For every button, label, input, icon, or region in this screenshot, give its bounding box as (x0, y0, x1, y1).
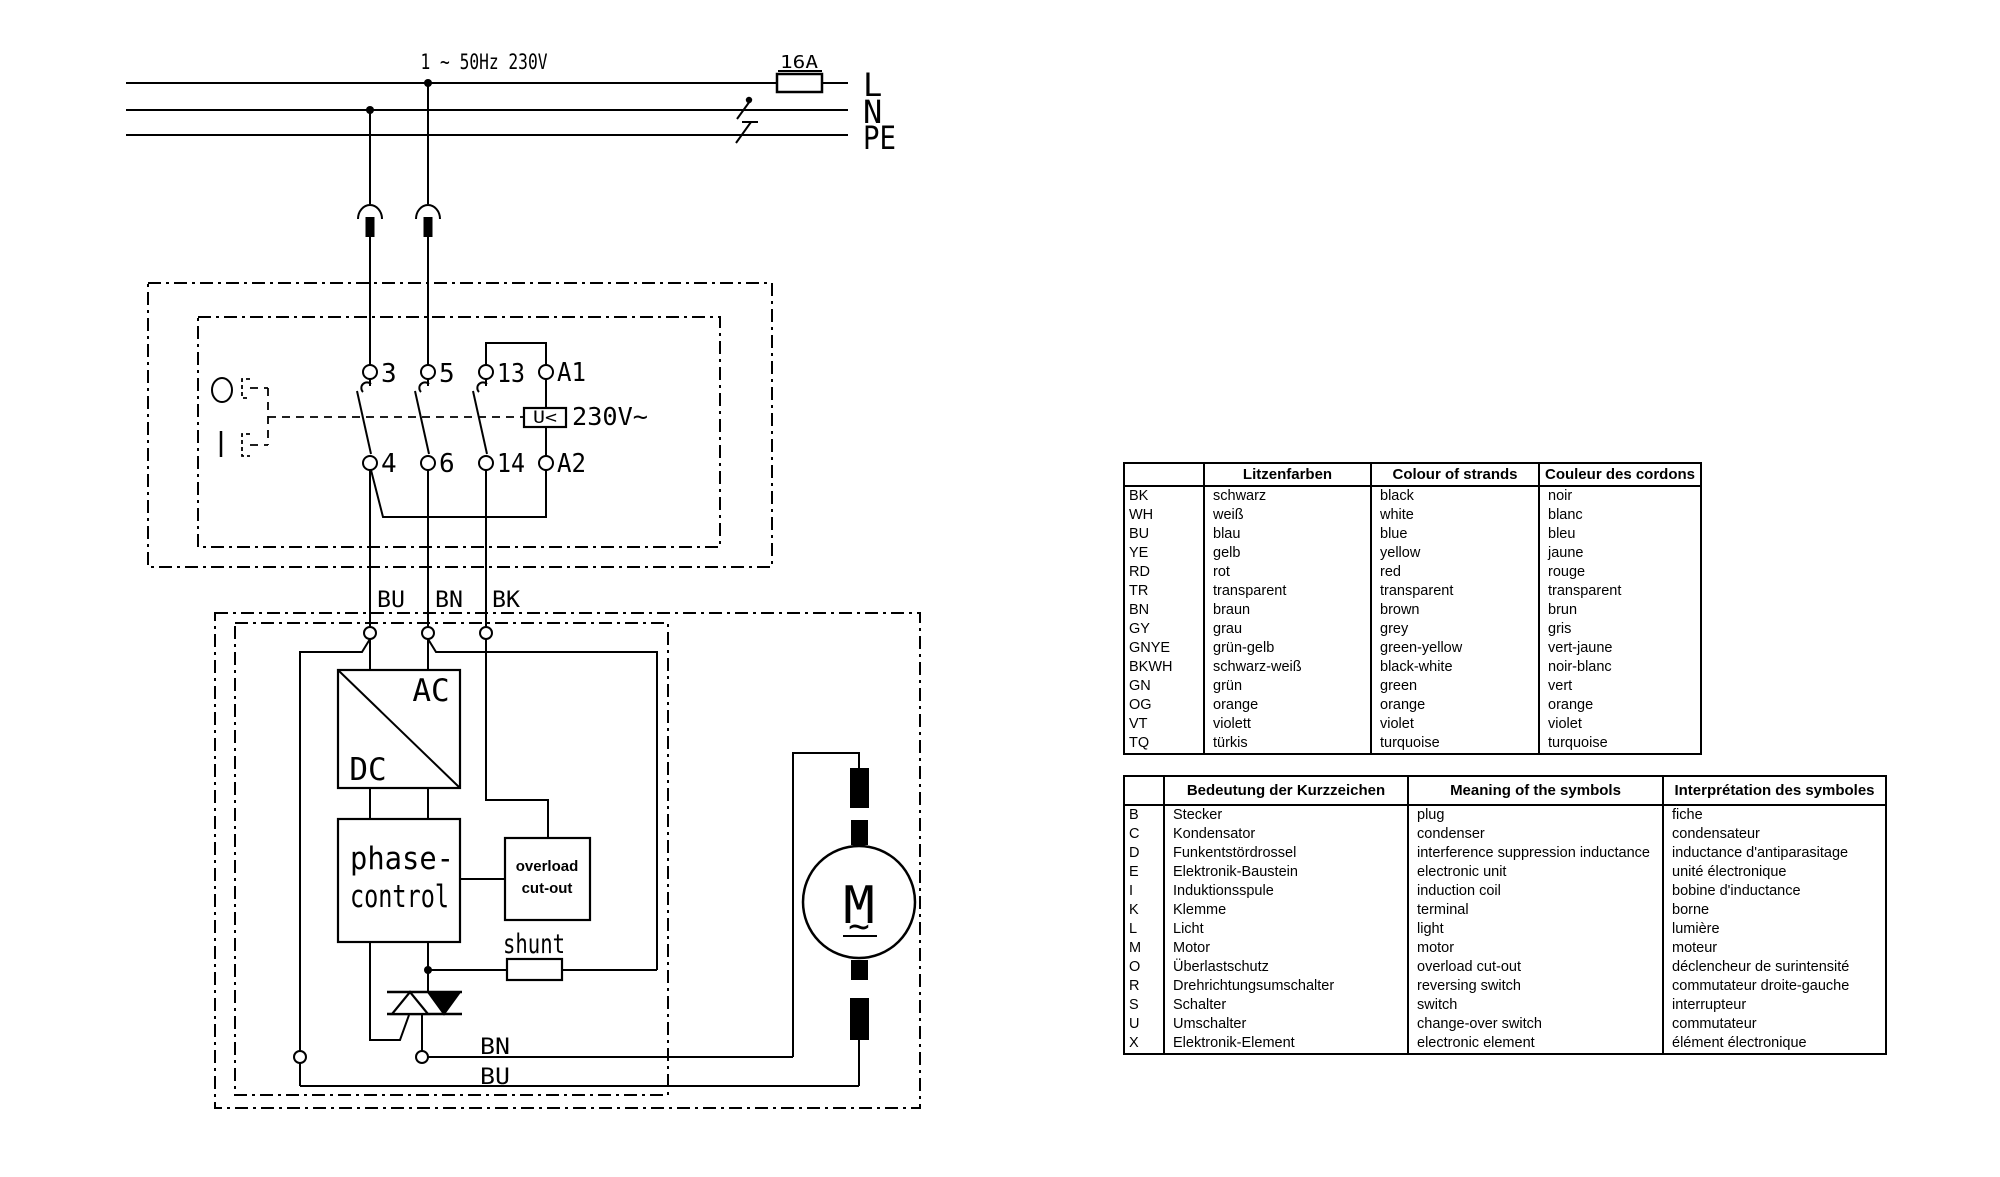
table-cell: brown (1371, 601, 1539, 620)
table-cell: C (1124, 825, 1164, 844)
table-cell: B (1124, 805, 1164, 825)
acdc-bottom-label: DC (349, 752, 386, 788)
table-cell: commutateur (1663, 1015, 1886, 1034)
table-row: LLichtlightlumière (1124, 920, 1886, 939)
table-cell: brun (1539, 601, 1701, 620)
table-row: RDrotredrouge (1124, 563, 1701, 582)
table-cell: terminal (1408, 901, 1663, 920)
table-cell: green-yellow (1371, 639, 1539, 658)
contact-13-14: 13 14 (473, 359, 525, 479)
page: { "diagram": { "supply_label": "1 ~ 50Hz… (0, 0, 2000, 1177)
table-cell: élément électronique (1663, 1034, 1886, 1054)
output-terminal (294, 1051, 306, 1063)
wires-to-unit: BU BN BK (370, 470, 521, 627)
table-cell: electronic element (1408, 1034, 1663, 1054)
contact-5-6: 5 6 (415, 359, 455, 479)
table-row: BUblaubluebleu (1124, 525, 1701, 544)
table-cell: grey (1371, 620, 1539, 639)
table-cell: X (1124, 1034, 1164, 1054)
column-header: Interprétation des symboles (1663, 776, 1886, 805)
terminal-label: A2 (557, 449, 586, 479)
table-cell: violett (1204, 715, 1371, 734)
table-cell: interrupteur (1663, 996, 1886, 1015)
table-row: MMotormotormoteur (1124, 939, 1886, 958)
table-cell: motor (1408, 939, 1663, 958)
table-cell: D (1124, 844, 1164, 863)
fuse-icon: 16A (777, 52, 822, 92)
table-cell: OG (1124, 696, 1204, 715)
motor-wave: ~ (848, 906, 870, 947)
table-cell: condenser (1408, 825, 1663, 844)
table-cell: Kondensator (1164, 825, 1408, 844)
table-cell: turquoise (1371, 734, 1539, 754)
shunt-label: shunt (503, 929, 565, 960)
table-cell: RD (1124, 563, 1204, 582)
table-cell: U (1124, 1015, 1164, 1034)
table-cell: gelb (1204, 544, 1371, 563)
motor-icon: M ~ (793, 753, 915, 1086)
table-cell: BK (1124, 486, 1204, 506)
unit-terminal (364, 627, 376, 639)
table-cell: reversing switch (1408, 977, 1663, 996)
table-cell: BN (1124, 601, 1204, 620)
table-cell: change-over switch (1408, 1015, 1663, 1034)
table-cell: Elektronik-Element (1164, 1034, 1408, 1054)
output-terminal (416, 1051, 428, 1063)
table-cell: weiß (1204, 506, 1371, 525)
table-cell: moteur (1663, 939, 1886, 958)
strand-colour-table: LitzenfarbenColour of strandsCouleur des… (1123, 462, 1702, 755)
table-cell: red (1371, 563, 1539, 582)
table-cell: M (1124, 939, 1164, 958)
table-cell: inductance d'antiparasitage (1663, 844, 1886, 863)
table-cell: Motor (1164, 939, 1408, 958)
table-cell: türkis (1204, 734, 1371, 754)
terminal-label: 6 (439, 449, 455, 479)
table-cell: turquoise (1539, 734, 1701, 754)
table-cell: blue (1371, 525, 1539, 544)
terminal-label: 5 (439, 359, 455, 389)
table-cell: grün (1204, 677, 1371, 696)
table-cell: black (1371, 486, 1539, 506)
table-cell: E (1124, 863, 1164, 882)
terminal-label: 13 (497, 359, 525, 389)
table-row: UUmschalterchange-over switchcommutateur (1124, 1015, 1886, 1034)
break-mark-pe-icon (736, 122, 758, 143)
column-header: Bedeutung der Kurzzeichen (1164, 776, 1408, 805)
table-cell: black-white (1371, 658, 1539, 677)
wire-bk-label: BK (492, 588, 521, 613)
acdc-converter-box: AC DC (338, 670, 460, 788)
table-cell: TQ (1124, 734, 1204, 754)
table-row: OÜberlastschutzoverload cut-outdéclenche… (1124, 958, 1886, 977)
table-row: IInduktionsspuleinduction coilbobine d'i… (1124, 882, 1886, 901)
table-cell: Schalter (1164, 996, 1408, 1015)
table-cell: L (1124, 920, 1164, 939)
table-cell: fiche (1663, 805, 1886, 825)
table-cell: overload cut-out (1408, 958, 1663, 977)
table-row: XElektronik-Elementelectronic elementélé… (1124, 1034, 1886, 1054)
table-cell: rot (1204, 563, 1371, 582)
table-row: BKschwarzblacknoir (1124, 486, 1701, 506)
terminal-label: 4 (381, 449, 397, 479)
table-row: KKlemmeterminalborne (1124, 901, 1886, 920)
table-cell: Überlastschutz (1164, 958, 1408, 977)
table-cell: borne (1663, 901, 1886, 920)
wiring-diagram: L N PE 1 ~ 50Hz 230V 16A (0, 0, 960, 1177)
table-cell: schwarz (1204, 486, 1371, 506)
table-cell: I (1124, 882, 1164, 901)
table-cell: O (1124, 958, 1164, 977)
overload-cutout-box: overload cut-out (505, 838, 590, 920)
table-row: GNYEgrün-gelbgreen-yellowvert-jaune (1124, 639, 1701, 658)
overload-label: cut-out (522, 880, 573, 897)
table-cell: blanc (1539, 506, 1701, 525)
contactor-inner-box (198, 317, 720, 547)
triac-icon (387, 992, 462, 1051)
table-cell: schwarz-weiß (1204, 658, 1371, 677)
table-cell: transparent (1371, 582, 1539, 601)
column-header: Litzenfarben (1204, 463, 1371, 486)
terminal-label: A1 (557, 358, 586, 388)
table-cell: bleu (1539, 525, 1701, 544)
table-cell: white (1371, 506, 1539, 525)
acdc-top-label: AC (412, 673, 449, 709)
table-cell: violet (1539, 715, 1701, 734)
phase-control-box: phase- control (338, 819, 460, 942)
drop-wires (358, 83, 440, 365)
wire-bu-label: BU (377, 588, 405, 613)
table-cell: Elektronik-Baustein (1164, 863, 1408, 882)
supply-rating-label: 1 ~ 50Hz 230V (421, 50, 548, 74)
table-cell: grün-gelb (1204, 639, 1371, 658)
column-header (1124, 463, 1204, 486)
table-cell: BU (1124, 525, 1204, 544)
table-cell: GNYE (1124, 639, 1204, 658)
table-cell: YE (1124, 544, 1204, 563)
table-cell: R (1124, 977, 1164, 996)
contactor-outer-box (148, 283, 772, 567)
unit-terminal (480, 627, 492, 639)
table-cell: transparent (1539, 582, 1701, 601)
table-row: DFunkentstördrosselinterference suppress… (1124, 844, 1886, 863)
off-button-symbol (212, 378, 250, 402)
table-cell: VT (1124, 715, 1204, 734)
output-wires: BN BU (294, 1035, 859, 1090)
table-cell: déclencheur de surintensité (1663, 958, 1886, 977)
table-row: BSteckerplugfiche (1124, 805, 1886, 825)
table-row: OGorangeorangeorange (1124, 696, 1701, 715)
table-row: VTviolettvioletviolet (1124, 715, 1701, 734)
table-cell: noir-blanc (1539, 658, 1701, 677)
column-header: Colour of strands (1371, 463, 1539, 486)
table-cell: condensateur (1663, 825, 1886, 844)
table-cell: Klemme (1164, 901, 1408, 920)
table-cell: orange (1204, 696, 1371, 715)
table-cell: lumière (1663, 920, 1886, 939)
plug-connector-icon (358, 205, 382, 237)
overload-label: overload (516, 858, 579, 875)
table-row: TRtransparenttransparenttransparent (1124, 582, 1701, 601)
table-row: SSchalterswitchinterrupteur (1124, 996, 1886, 1015)
table-cell: Drehrichtungsumschalter (1164, 977, 1408, 996)
table-cell: blau (1204, 525, 1371, 544)
fuse-rating-label: 16A (780, 52, 818, 73)
wire-bn-label: BN (435, 588, 463, 613)
table-cell: TR (1124, 582, 1204, 601)
table-cell: switch (1408, 996, 1663, 1015)
table-cell: electronic unit (1408, 863, 1663, 882)
break-mark-n-icon (737, 97, 752, 119)
table-cell: gris (1539, 620, 1701, 639)
table-cell: noir (1539, 486, 1701, 506)
table-row: WHweißwhiteblanc (1124, 506, 1701, 525)
table-cell: grau (1204, 620, 1371, 639)
table-cell: jaune (1539, 544, 1701, 563)
table-cell: commutateur droite-gauche (1663, 977, 1886, 996)
table-cell: GN (1124, 677, 1204, 696)
table-row: TQtürkisturquoiseturquoise (1124, 734, 1701, 754)
table-row: CKondensatorcondensercondensateur (1124, 825, 1886, 844)
out-bn-label: BN (480, 1035, 510, 1060)
table-cell: green (1371, 677, 1539, 696)
table-cell: bobine d'inductance (1663, 882, 1886, 901)
table-cell: vert-jaune (1539, 639, 1701, 658)
out-bu-label: BU (480, 1065, 510, 1090)
table-cell: plug (1408, 805, 1663, 825)
table-cell: S (1124, 996, 1164, 1015)
table-cell: Induktionsspule (1164, 882, 1408, 901)
symbol-meaning-table: Bedeutung der KurzzeichenMeaning of the … (1123, 775, 1887, 1055)
table-cell: GY (1124, 620, 1204, 639)
table-cell: light (1408, 920, 1663, 939)
table-cell: vert (1539, 677, 1701, 696)
column-header (1124, 776, 1164, 805)
table-cell: violet (1371, 715, 1539, 734)
phase-control-label: control (350, 879, 449, 915)
table-row: GYgraugreygris (1124, 620, 1701, 639)
table-row: GNgrüngreenvert (1124, 677, 1701, 696)
table-row: YEgelbyellowjaune (1124, 544, 1701, 563)
column-header: Meaning of the symbols (1408, 776, 1663, 805)
table-row: BNbraunbrownbrun (1124, 601, 1701, 620)
table-cell: orange (1539, 696, 1701, 715)
coil-voltage-label: 230V~ (572, 402, 648, 431)
contact-3-4: 3 4 (357, 359, 397, 479)
table-cell: transparent (1204, 582, 1371, 601)
table-cell: interference suppression inductance (1408, 844, 1663, 863)
table-cell: Licht (1164, 920, 1408, 939)
table-cell: induction coil (1408, 882, 1663, 901)
table-row: RDrehrichtungsumschalterreversing switch… (1124, 977, 1886, 996)
table-cell: yellow (1371, 544, 1539, 563)
table-cell: WH (1124, 506, 1204, 525)
column-header: Couleur des cordons (1539, 463, 1701, 486)
table-cell: Umschalter (1164, 1015, 1408, 1034)
table-cell: K (1124, 901, 1164, 920)
table-cell: rouge (1539, 563, 1701, 582)
line-pe-label: PE (863, 119, 896, 157)
table-cell: Stecker (1164, 805, 1408, 825)
table-cell: BKWH (1124, 658, 1204, 677)
phase-control-label: phase- (350, 841, 454, 877)
plug-connector-icon (416, 205, 440, 237)
table-cell: braun (1204, 601, 1371, 620)
table-row: EElektronik-Bausteinelectronic unitunité… (1124, 863, 1886, 882)
table-cell: Funkentstördrossel (1164, 844, 1408, 863)
coil-label: U< (533, 408, 557, 428)
table-cell: orange (1371, 696, 1539, 715)
terminal-label: 14 (497, 449, 525, 479)
on-button-symbol (221, 431, 250, 457)
terminal-label: 3 (381, 359, 397, 389)
table-cell: unité électronique (1663, 863, 1886, 882)
table-row: BKWHschwarz-weißblack-whitenoir-blanc (1124, 658, 1701, 677)
unit-terminal (422, 627, 434, 639)
